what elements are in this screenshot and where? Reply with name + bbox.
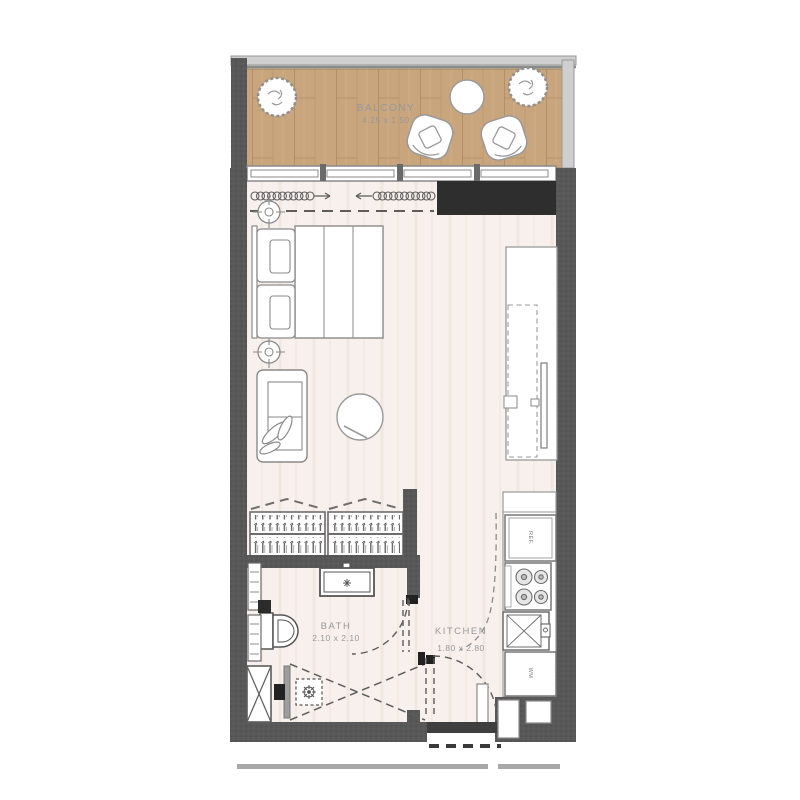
tv-console	[504, 247, 557, 460]
stove-control-panel	[505, 566, 511, 607]
balcony-dimensions: 4.25 x 1.50	[362, 115, 410, 125]
wardrobe-side-wall	[403, 489, 417, 556]
toilet	[260, 613, 298, 649]
kitchen-dimensions: 1.80 x 2.80	[437, 643, 485, 653]
bed-headboard	[252, 226, 257, 338]
balcony: BALCONY 4.25 x 1.50	[231, 56, 576, 170]
bottom-wall-left	[230, 722, 427, 742]
window-panel	[327, 170, 394, 177]
bath-right-wall-lower	[407, 710, 420, 736]
refrigerator: REF.	[505, 515, 556, 561]
right-wall	[556, 168, 576, 742]
hanging-clothes	[331, 537, 400, 553]
washing-machine: WM	[505, 652, 556, 696]
window-panel	[481, 170, 548, 177]
vanity-sink	[320, 563, 374, 596]
bath-top-wall	[247, 555, 420, 568]
balcony-right-railing	[562, 60, 574, 168]
balcony-table	[450, 80, 484, 114]
bed-mattress	[295, 226, 383, 338]
refrigerator-label: REF.	[527, 531, 533, 545]
window-panel	[404, 170, 471, 177]
window-panel	[251, 170, 318, 177]
balcony-left-wall	[231, 58, 247, 170]
door-stop-hardware	[418, 652, 425, 665]
bed	[252, 226, 383, 338]
duct-shaft	[247, 666, 271, 722]
shower-mixer	[274, 684, 285, 700]
entry-cabinet	[498, 700, 519, 738]
window-wall	[247, 164, 556, 181]
bath-label: BATH	[321, 621, 352, 632]
balcony-label: BALCONY	[357, 103, 415, 114]
lower-wall-line-right	[498, 764, 560, 769]
floor-plan-drawing: BALCONY 4.25 x 1.50	[0, 0, 800, 800]
balcony-plant-left	[258, 78, 296, 116]
balcony-top-railing	[231, 56, 576, 65]
stove	[505, 563, 551, 610]
hanging-clothes	[331, 515, 400, 531]
window-mullion	[474, 164, 480, 181]
entry-door-panel	[477, 684, 488, 726]
floor-plan-page: BALCONY 4.25 x 1.50	[0, 0, 800, 800]
console-bracket	[531, 399, 539, 406]
washing-machine-label: WM	[527, 668, 533, 679]
bath-dimensions: 2.10 x 2.10	[312, 633, 360, 643]
lower-wall-line-left	[237, 764, 488, 769]
left-wall	[230, 168, 247, 742]
valve-box	[258, 600, 271, 613]
round-table	[337, 394, 383, 440]
kitchen-sink	[503, 612, 550, 650]
console-bracket	[504, 396, 517, 408]
shower-head	[302, 685, 316, 699]
balcony-plant-right	[509, 68, 547, 106]
hanging-clothes	[253, 537, 322, 553]
tv-screen	[541, 363, 547, 448]
hanging-clothes	[253, 515, 322, 531]
bath-right-wall-upper	[407, 555, 420, 598]
window-mullion	[397, 164, 403, 181]
window-mullion	[320, 164, 326, 181]
ceiling-bulkhead	[437, 181, 556, 215]
entry-door-closed	[427, 722, 497, 733]
kitchen-label: KITCHEN	[435, 626, 487, 637]
entry-shaft	[526, 701, 551, 723]
